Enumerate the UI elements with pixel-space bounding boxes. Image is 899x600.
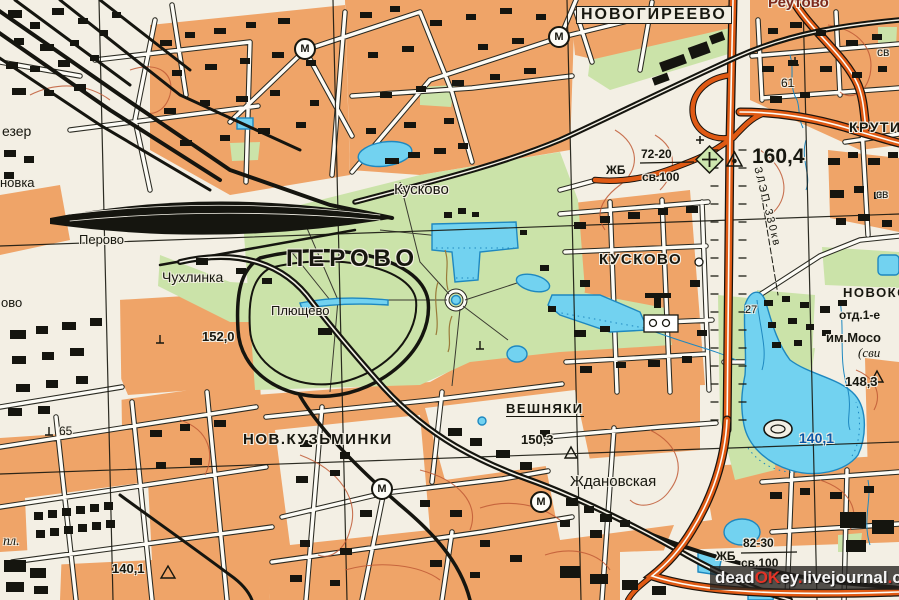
map-label-lake-140-1: 140,1 [799, 431, 834, 445]
map-label-kuskovo-district: КУСКОВО [599, 252, 682, 267]
map-label-sv-top: св [877, 46, 889, 58]
map-label-otd-1e: отд.1-е [839, 309, 880, 321]
map-label-reutovo: Реутово [768, 0, 829, 10]
map-label-veshnyaki: ВЕШНЯКИ [506, 402, 584, 417]
map-label-novka: новка [0, 176, 35, 189]
map-label-num-27: 27 [745, 305, 757, 316]
map-label-ovo: ово [1, 296, 22, 309]
map-label-ezer: езер [2, 124, 31, 138]
map-label-bridge2-top: 82-30 [743, 537, 774, 549]
topographic-map-canvas [0, 0, 899, 600]
map-label-perovo-station: Перово [79, 233, 124, 246]
watermark: deadOKey.livejournal.com [710, 566, 899, 590]
map-label-elev-150-3: 150,3 [521, 433, 554, 446]
place-circle-icon [695, 258, 703, 266]
watermark-segment: dead [715, 568, 755, 587]
map-label-perovo-district: ПЕРОВО [286, 247, 419, 271]
map-label-num-65: 65 [59, 425, 72, 437]
metro-station-icon: М [548, 26, 570, 48]
map-label-novogireevo: НОВОГИРЕЕВО [576, 6, 732, 24]
map-label-krutitsy: КРУТИЦ [849, 120, 899, 134]
map-label-plyushchevo: Плющево [271, 304, 329, 317]
watermark-segment: ey [780, 568, 798, 587]
map-label-bridge1-load: св.100 [642, 171, 679, 183]
map-label-elev-152-0: 152,0 [202, 330, 235, 343]
watermark-segment: OK [755, 568, 781, 587]
map-label-elev-160-4: 160,4 [752, 146, 805, 167]
metro-station-icon: М [530, 491, 552, 513]
metro-station-icon: М [371, 478, 393, 500]
map-label-kuskovo-park: Кусково [394, 182, 449, 197]
metro-station-icon: М [294, 38, 316, 60]
watermark-segment: livejournal [803, 568, 888, 587]
map-screenshot: НОВОГИРЕЕВОРеутовоКРУТИЦ160,472-20ЖБсв.1… [0, 0, 899, 600]
map-label-elev-140-1-sw: 140,1 [112, 562, 145, 575]
map-label-num-61: 61 [781, 77, 794, 89]
map-label-svi: (сви [858, 346, 880, 359]
map-label-elev-148-3: 148,3 [845, 375, 878, 388]
map-label-bridge2-mat: ЖБ [716, 550, 735, 562]
map-label-sv-right: св [876, 188, 888, 200]
map-label-novokosino: НОВОКОС [843, 286, 899, 299]
map-label-zhdanovskaya: Ждановская [570, 474, 656, 489]
watermark-segment: com [892, 568, 899, 587]
stadium-icon [764, 420, 792, 438]
map-label-pl: пл. [3, 535, 20, 549]
map-label-nov-kuzminki: НОВ.КУЗЬМИНКИ [243, 432, 393, 447]
map-label-bridge1-mat: ЖБ [606, 164, 625, 176]
map-label-chukhlinka: Чухлинка [162, 270, 223, 284]
map-label-bridge1-top: 72-20 [641, 148, 672, 160]
map-label-im-moso: им.Мосо [826, 331, 881, 344]
fuel-tanks-icon [644, 315, 678, 332]
